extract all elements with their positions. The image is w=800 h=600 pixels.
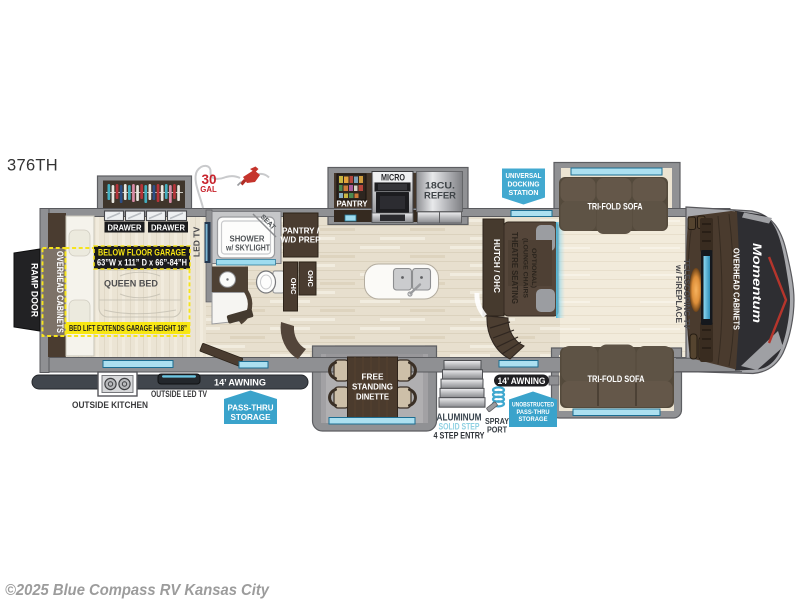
svg-text:376TH: 376TH: [7, 157, 58, 175]
svg-text:QUEEN BED: QUEEN BED: [104, 279, 158, 290]
svg-text:STORAGE: STORAGE: [519, 416, 548, 423]
svg-text:OHC: OHC: [306, 270, 315, 287]
svg-text:OPTIONAL): OPTIONAL): [530, 248, 537, 288]
svg-text:(LOUNGE CHAIRS: (LOUNGE CHAIRS: [522, 238, 529, 299]
svg-text:OUTSIDE KITCHEN: OUTSIDE KITCHEN: [72, 400, 148, 410]
svg-text:UNOBSTRUCTED: UNOBSTRUCTED: [512, 402, 554, 409]
svg-text:PANTRY /: PANTRY /: [282, 227, 320, 236]
svg-text:STORAGE: STORAGE: [231, 413, 272, 422]
svg-text:TRI-FOLD SOFA: TRI-FOLD SOFA: [588, 374, 645, 385]
svg-text:SHOWER: SHOWER: [230, 235, 265, 244]
svg-text:14’ AWNING: 14’ AWNING: [214, 378, 266, 388]
svg-text:GAL: GAL: [200, 185, 217, 194]
svg-text:18CU.: 18CU.: [425, 181, 455, 191]
svg-text:BELOW FLOOR GARAGE: BELOW FLOOR GARAGE: [98, 248, 186, 258]
svg-text:OVERHEAD CABINETS: OVERHEAD CABINETS: [732, 248, 742, 330]
svg-text:Momentum: Momentum: [750, 243, 762, 323]
svg-text:RAMP DOOR: RAMP DOOR: [29, 263, 40, 317]
svg-text:BED LIFT EXTENDS GARAGE HEIGHT: BED LIFT EXTENDS GARAGE HEIGHT 18”: [69, 323, 187, 333]
svg-text:THEATRE SEATING: THEATRE SEATING: [510, 232, 520, 304]
svg-text:4 STEP ENTRY: 4 STEP ENTRY: [434, 431, 485, 441]
svg-text:w/ FIREPLACE: w/ FIREPLACE: [674, 264, 683, 323]
svg-text:PORT: PORT: [487, 426, 507, 435]
svg-text:DRAWER: DRAWER: [108, 223, 142, 233]
svg-text:PASS-THRU: PASS-THRU: [228, 404, 274, 413]
svg-text:OUTSIDE LED TV: OUTSIDE LED TV: [151, 389, 208, 399]
svg-text:FREE: FREE: [362, 373, 385, 382]
svg-text:REFER: REFER: [424, 191, 457, 201]
svg-text:LED TV: LED TV: [192, 227, 202, 258]
svg-text:63”W x 111” D x 66”-84”H: 63”W x 111” D x 66”-84”H: [97, 258, 187, 268]
svg-text:©2025 Blue Compass RV Kansas C: ©2025 Blue Compass RV Kansas City: [5, 582, 270, 599]
svg-text:PANTRY: PANTRY: [337, 199, 368, 209]
svg-text:PASS-THRU: PASS-THRU: [517, 409, 550, 416]
svg-text:STATION: STATION: [509, 188, 539, 197]
svg-text:OHC: OHC: [289, 278, 298, 295]
svg-text:W/D PREP: W/D PREP: [281, 236, 322, 245]
svg-text:TRI-FOLD SOFA: TRI-FOLD SOFA: [588, 202, 643, 213]
svg-text:HUTCH / OHC: HUTCH / OHC: [492, 239, 502, 293]
svg-text:STANDING: STANDING: [352, 383, 393, 392]
svg-text:MICRO: MICRO: [381, 173, 405, 183]
svg-text:OVERHEAD CABINETS: OVERHEAD CABINETS: [55, 251, 65, 333]
svg-text:DINETTE: DINETTE: [356, 393, 390, 402]
svg-text:14’ AWNING: 14’ AWNING: [498, 376, 546, 386]
svg-text:w/ SKYLIGHT: w/ SKYLIGHT: [225, 244, 270, 253]
svg-text:DRAWER: DRAWER: [151, 223, 185, 233]
